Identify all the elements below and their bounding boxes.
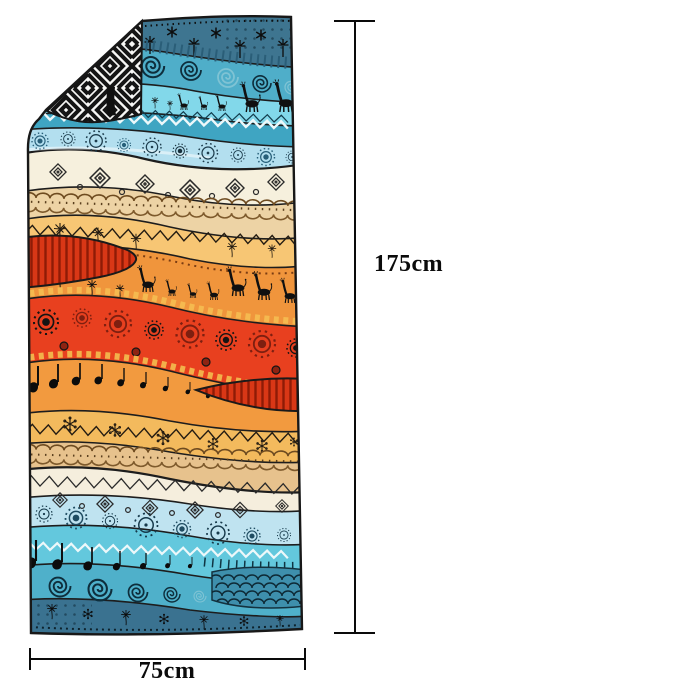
height-dimension-label: 175cm: [374, 251, 443, 278]
height-dimension-line: [354, 21, 356, 633]
towel-product-photo: [0, 0, 675, 688]
motif-fan-scales: [210, 567, 312, 608]
height-dimension-cap-bottom: [334, 632, 375, 634]
towel-back-fold: [47, 21, 142, 122]
width-dimension-label: 75cm: [112, 658, 222, 685]
product-image-canvas: 175cm 75cm: [0, 0, 675, 688]
width-dimension-cap-right: [304, 648, 306, 670]
height-dimension-cap-top: [334, 20, 375, 22]
width-dimension-cap-left: [29, 648, 31, 670]
